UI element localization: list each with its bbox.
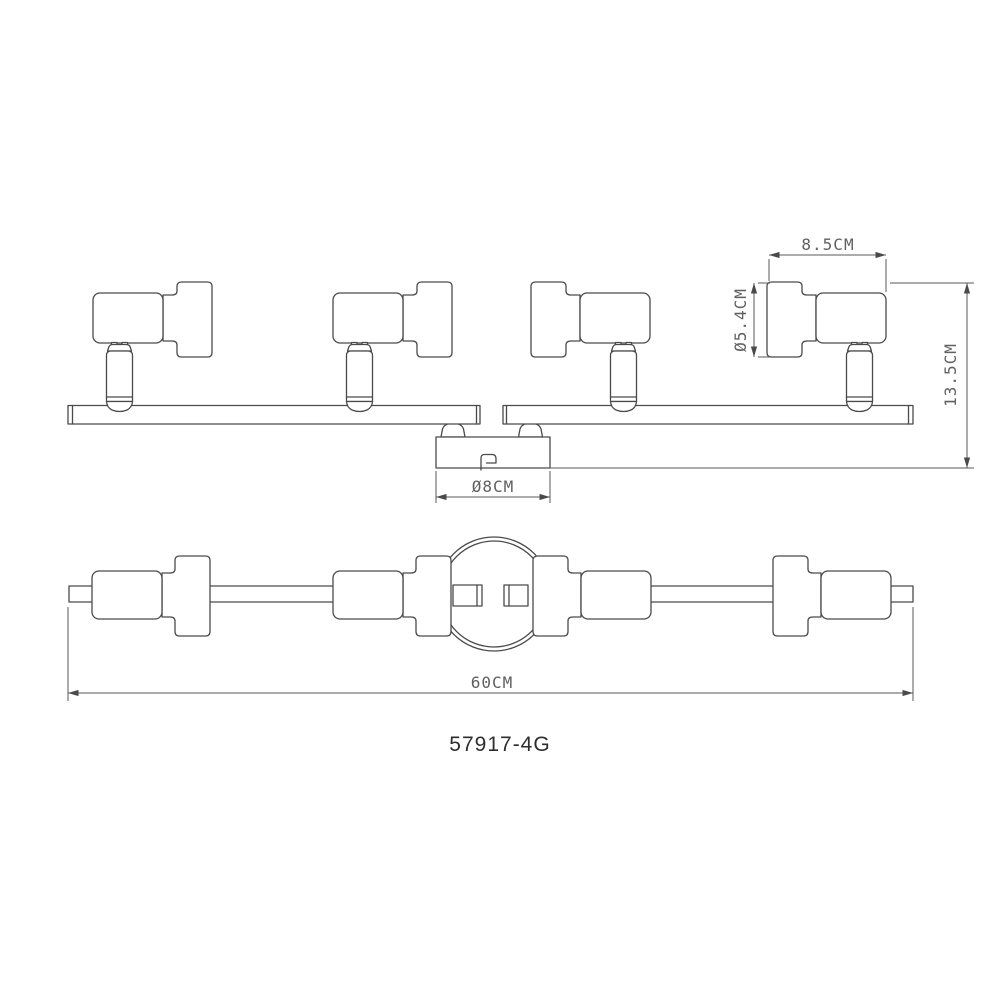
technical-drawing-svg: 8.5CM Ø5.4CM 13.5CM Ø8CM — [0, 0, 1000, 1000]
spot-head-4-front — [767, 282, 886, 412]
spot-head-2-front — [333, 282, 452, 412]
plan-view — [69, 537, 913, 651]
model-number-label: 57917-4G — [449, 733, 550, 756]
dim-label-overall-height: 13.5CM — [941, 343, 960, 407]
mounting-slot-right — [504, 585, 528, 606]
mounting-slot-left — [453, 585, 482, 606]
canopy-clip-left — [441, 423, 465, 437]
drawing-canvas: 8.5CM Ø5.4CM 13.5CM Ø8CM — [0, 0, 1000, 1000]
dim-label-head-diameter: Ø5.4CM — [731, 288, 750, 352]
spot-head-4-plan — [773, 556, 891, 636]
spot-head-1-plan — [92, 556, 210, 636]
spot-head-3-front — [531, 282, 650, 412]
dim-label-head-width: 8.5CM — [801, 235, 854, 254]
spot-head-1-front — [93, 282, 212, 412]
dim-label-overall-length: 60CM — [471, 673, 514, 692]
dimension-canopy-diameter: Ø8CM — [436, 471, 550, 503]
spot-head-2-plan — [333, 556, 451, 636]
front-elevation-view — [68, 282, 913, 470]
dimension-head-diameter: Ø5.4CM — [731, 283, 770, 357]
dim-label-canopy-diameter: Ø8CM — [472, 477, 515, 496]
canopy-clip-right — [519, 423, 543, 437]
spot-head-3-plan — [533, 556, 651, 636]
